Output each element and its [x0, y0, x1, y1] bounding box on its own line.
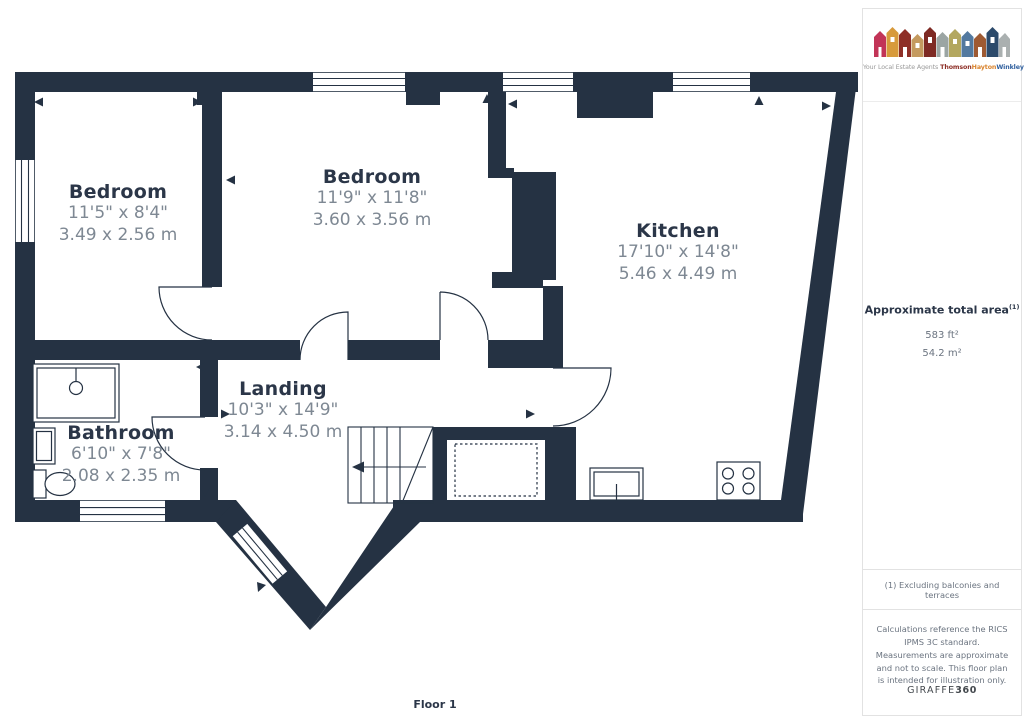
room-name: Kitchen [617, 220, 739, 242]
giraffe360-logo: GIRAFFE360 [863, 684, 1021, 699]
total-area-imperial: 583 ft² [863, 330, 1021, 341]
floor-plan: Bedroom 11'5" x 8'4" 3.49 x 2.56 m Bedro… [0, 0, 862, 724]
footnote-ref: (1) [1009, 303, 1019, 311]
room-label-kitchen: Kitchen 17'10" x 14'8" 5.46 x 4.49 m [617, 220, 739, 286]
room-dims-metric: 2.08 x 2.35 m [62, 466, 181, 488]
walls [15, 72, 858, 630]
agency-logo: Your Local Estate Agents ThomsonHaytonWi… [863, 9, 1021, 102]
info-panel: Your Local Estate Agents ThomsonHaytonWi… [862, 8, 1022, 716]
kitchen-sink [590, 468, 643, 500]
room-label-landing: Landing 10'3" x 14'9" 3.14 x 4.50 m [224, 378, 343, 444]
brand-winkley: Winkley [996, 64, 1024, 71]
window-top-1 [313, 73, 405, 91]
brand-thomson: Thomson [940, 64, 972, 71]
door-landing [440, 292, 488, 340]
room-label-bathroom: Bathroom 6'10" x 7'8" 2.08 x 2.35 m [62, 422, 181, 488]
room-dims-metric: 3.49 x 2.56 m [59, 225, 178, 247]
disclaimer-block: Calculations reference the RICS IPMS 3C … [863, 609, 1021, 715]
room-name: Landing [224, 378, 343, 400]
room-dims-imperial: 17'10" x 14'8" [617, 242, 739, 264]
door-icons [152, 287, 611, 470]
room-dims-imperial: 10'3" x 14'9" [224, 400, 343, 422]
floor-plan-drawing [0, 0, 862, 724]
room-dims-imperial: 11'9" x 11'8" [313, 188, 432, 210]
room-label-bedroom-1: Bedroom 11'5" x 8'4" 3.49 x 2.56 m [59, 181, 178, 247]
disclaimer-text: Calculations reference the RICS IPMS 3C … [876, 624, 1008, 685]
window-bathroom [80, 501, 165, 521]
room-dims-metric: 3.60 x 3.56 m [313, 210, 432, 232]
shower [33, 364, 119, 422]
stairs-direction-arrow [352, 462, 364, 473]
door-kitchen [553, 368, 611, 426]
window-top-2 [503, 73, 573, 91]
door-bedroom-2 [300, 312, 348, 360]
wash-basin [33, 428, 55, 464]
stairs [348, 427, 433, 503]
houses-logo-icon [874, 23, 1010, 57]
window-left [16, 160, 34, 242]
hob [717, 462, 760, 500]
tagline-prefix: Your Local Estate Agents [863, 64, 938, 71]
brand-hayton: Hayton [972, 64, 997, 71]
room-dims-imperial: 6'10" x 7'8" [62, 444, 181, 466]
footnote: (1) Excluding balconies and terraces [863, 569, 1021, 609]
storage-outline [455, 444, 537, 496]
agency-tagline: Your Local Estate Agents ThomsonHaytonWi… [863, 64, 1021, 71]
room-dims-imperial: 11'5" x 8'4" [59, 203, 178, 225]
window-top-3 [673, 73, 750, 91]
total-area-block: Approximate total area(1) 583 ft² 54.2 m… [863, 303, 1021, 359]
room-dims-metric: 5.46 x 4.49 m [617, 264, 739, 286]
door-bedroom-1 [159, 287, 212, 340]
room-label-bedroom-2: Bedroom 11'9" x 11'8" 3.60 x 3.56 m [313, 166, 432, 232]
floor-label: Floor 1 [413, 698, 456, 711]
total-area-title: Approximate total area(1) [863, 303, 1021, 317]
room-name: Bedroom [313, 166, 432, 188]
total-area-metric: 54.2 m² [863, 348, 1021, 359]
room-dims-metric: 3.14 x 4.50 m [224, 422, 343, 444]
room-name: Bedroom [59, 181, 178, 203]
kitchen-fixtures [590, 462, 760, 500]
room-name: Bathroom [62, 422, 181, 444]
